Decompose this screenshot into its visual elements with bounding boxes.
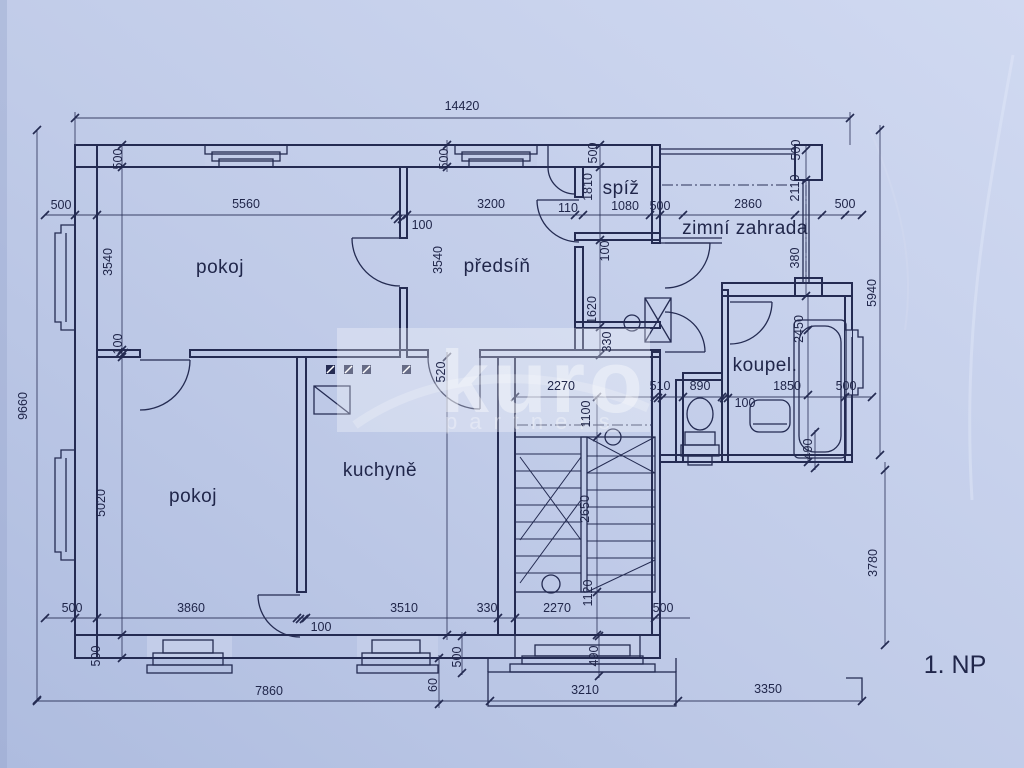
dimension-label: 14420 <box>445 99 480 113</box>
dimension-label: 500 <box>586 143 600 164</box>
dimension-label: 500 <box>89 646 103 667</box>
dimension-label: 500 <box>51 198 72 212</box>
dimension-label: 500 <box>835 197 856 211</box>
dimension-label: 3350 <box>754 682 782 696</box>
dimension-label: 2270 <box>547 379 575 393</box>
dimension-label: 500 <box>789 140 803 161</box>
room-label-pokoj-bottom: pokoj <box>169 486 217 507</box>
dimension-label: 60 <box>426 678 440 692</box>
dimension-label: 1080 <box>611 199 639 213</box>
floorplan-scan: kuro partners pokoj předsíň spíž zimní z… <box>0 0 1024 768</box>
dimension-label: 330 <box>477 601 498 615</box>
dimension-label: 2270 <box>543 601 571 615</box>
dimension-label: 5940 <box>865 279 879 307</box>
room-label-koupelna: koupel. <box>733 355 798 376</box>
room-label-kuchyne: kuchyně <box>343 460 417 481</box>
floorplan-drawing: kuro partners pokoj předsíň spíž zimní z… <box>0 0 1024 768</box>
dimension-label: 490 <box>801 439 815 460</box>
room-label-predsin: předsíň <box>464 256 531 277</box>
dimension-label: 1810 <box>581 173 595 201</box>
dimension-label: 100 <box>412 218 433 232</box>
room-label-spiz: spíž <box>603 178 640 199</box>
dimension-label: 500 <box>653 601 674 615</box>
dimension-label: 520 <box>434 362 448 383</box>
room-label-pokoj-top: pokoj <box>196 257 244 278</box>
dimension-label: 510 <box>650 379 671 393</box>
dimension-label: 3780 <box>866 549 880 577</box>
dimension-label: 3200 <box>477 197 505 211</box>
dimension-label: 3510 <box>390 601 418 615</box>
dimension-label: 1120 <box>581 580 595 607</box>
room-label-zimni-zahrada: zimní zahrada <box>682 218 808 239</box>
dimension-label: 380 <box>788 248 802 269</box>
dimension-label: 500 <box>111 149 125 170</box>
dimension-label: 500 <box>650 199 671 213</box>
dimension-label: 1100 <box>579 401 593 428</box>
dimension-label: 100 <box>111 334 125 355</box>
dimension-label: 7860 <box>255 684 283 698</box>
dimension-label: 100 <box>311 620 332 634</box>
dimension-label: 500 <box>836 379 857 393</box>
dimension-label: 3210 <box>571 683 599 697</box>
dimension-label: 2110 <box>788 175 802 202</box>
dimension-label: 1850 <box>773 379 801 393</box>
dimension-label: 500 <box>450 647 464 668</box>
dimension-label: 330 <box>600 332 614 353</box>
dimension-label: 1620 <box>585 296 599 324</box>
dimension-label: 890 <box>690 379 711 393</box>
dimension-label: 5020 <box>94 489 108 517</box>
dimension-label: 500 <box>62 601 83 615</box>
dimension-label: 5560 <box>232 197 260 211</box>
dimension-label: 100 <box>735 396 756 410</box>
watermark-text-2: partners <box>445 409 622 434</box>
dimension-label: 490 <box>587 646 601 667</box>
dimension-label: 9660 <box>16 392 30 420</box>
dimension-label: 100 <box>598 241 612 262</box>
floor-label: 1. NP <box>924 651 987 679</box>
dimension-label: 2860 <box>734 197 762 211</box>
dimension-label: 3860 <box>177 601 205 615</box>
dimension-label: 2650 <box>578 495 592 523</box>
dimension-label: 500 <box>437 149 451 170</box>
dimension-label: 2450 <box>792 315 806 343</box>
dimension-label: 3540 <box>101 248 115 276</box>
dimension-label: 110 <box>558 201 578 215</box>
dimension-label: 3540 <box>431 246 445 274</box>
